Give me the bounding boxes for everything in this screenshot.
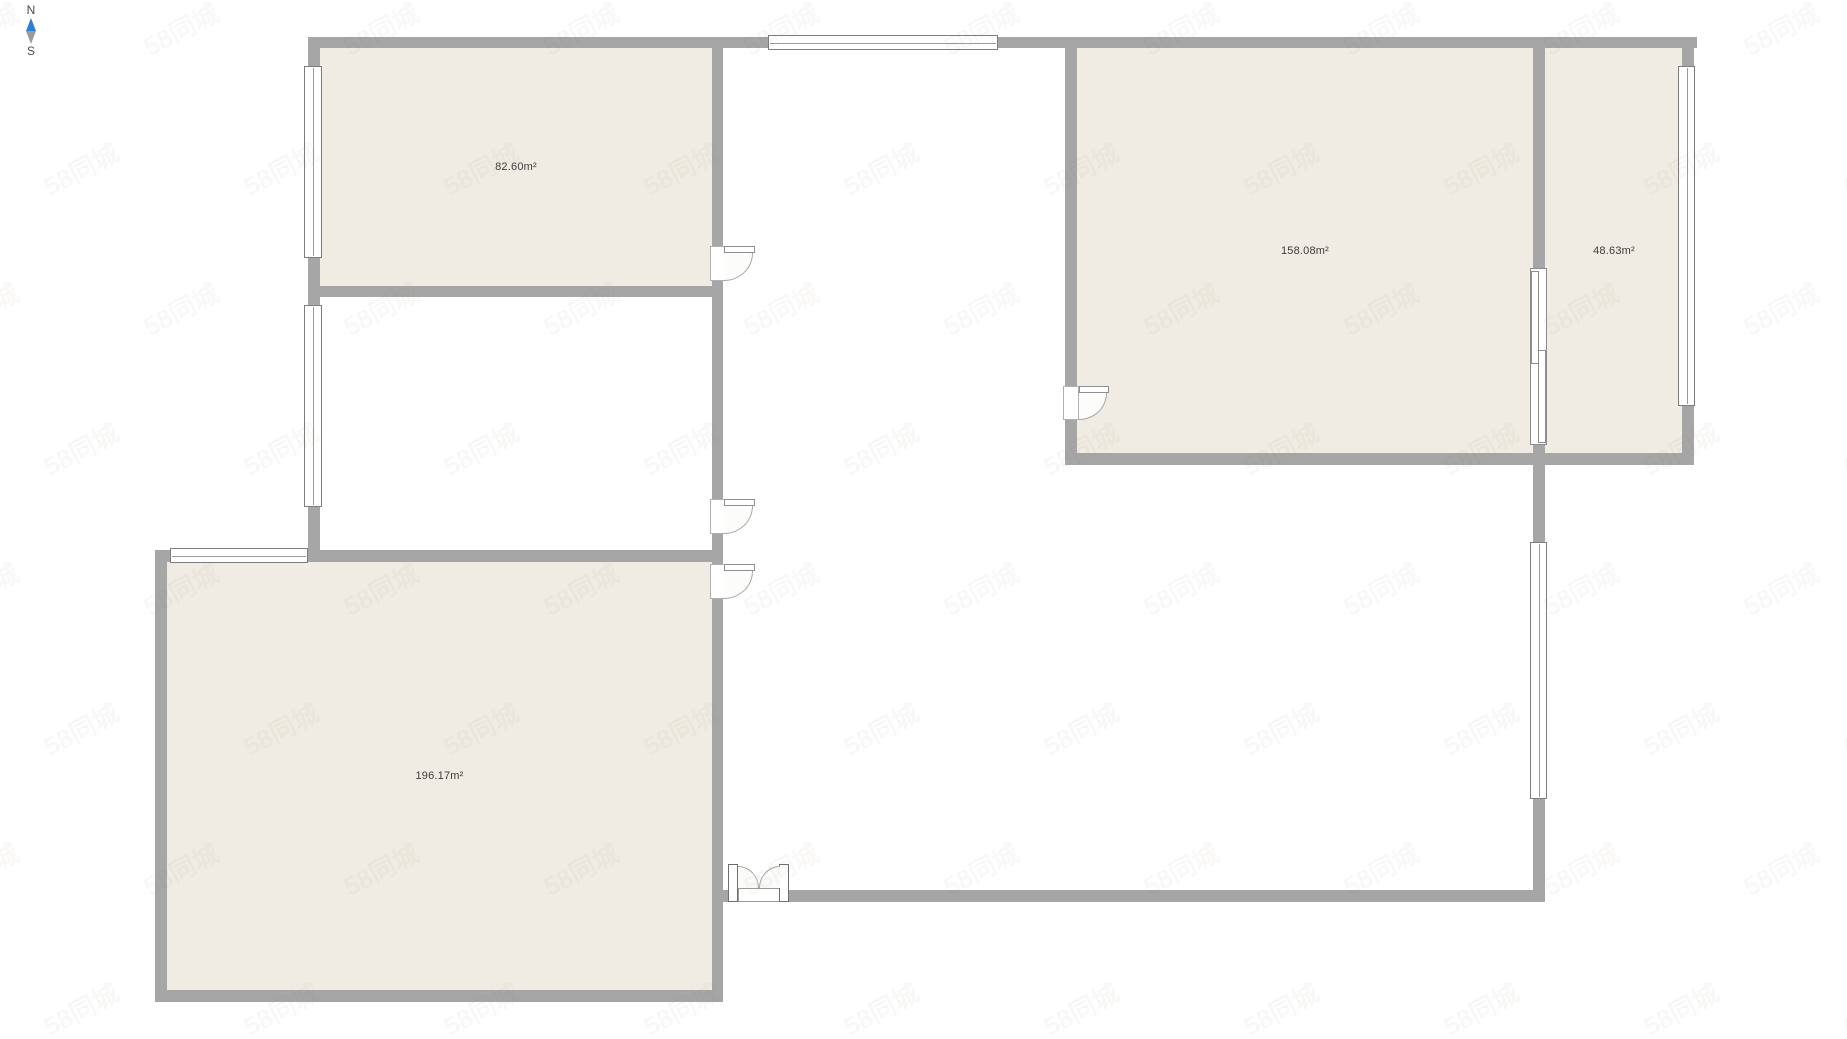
window-corridor-right <box>1530 542 1547 799</box>
window-middle-room <box>304 305 322 507</box>
room-area-label: 82.60m² <box>495 161 537 173</box>
wall-bottomleft-room-bottom <box>155 990 723 1002</box>
watermark-text: 58同城 <box>1036 693 1125 764</box>
watermark-text: 58同城 <box>0 273 25 344</box>
watermark-text: 58同城 <box>1236 973 1325 1039</box>
watermark-text: 58同城 <box>1636 973 1725 1039</box>
watermark-text: 58同城 <box>936 0 1025 64</box>
door-leaf <box>724 246 755 253</box>
wall-topleft-room-bottom <box>308 286 723 297</box>
sliding-door-panel-bottom <box>1538 350 1546 443</box>
door-swing-arc <box>724 571 753 599</box>
window-top-corridor <box>768 35 998 50</box>
watermark-text: 58同城 <box>836 693 925 764</box>
door-swing-arc <box>724 506 753 534</box>
watermark-text: 58同城 <box>836 973 925 1039</box>
room-area-label: 48.63m² <box>1593 245 1635 257</box>
watermark-text: 58同城 <box>1436 693 1525 764</box>
compass-north-arrow-icon <box>26 18 36 31</box>
watermark-text: 58同城 <box>736 0 825 64</box>
wall-bottomleft-room-left <box>155 550 167 1002</box>
watermark-text: 58同城 <box>1336 553 1425 624</box>
compass-south-arrow-icon <box>26 31 36 44</box>
room-bottom-left: 196.17m² <box>161 556 718 996</box>
watermark-text: 58同城 <box>836 133 925 204</box>
room-area-label: 158.08m² <box>1281 245 1329 257</box>
window-topleft-room <box>304 66 322 258</box>
window-glass-line <box>770 43 996 44</box>
watermark-text: 58同城 <box>736 273 825 344</box>
window-glass-line <box>172 556 306 557</box>
door-jamb <box>710 564 725 599</box>
double-door-swing-arc-right <box>759 866 780 888</box>
double-door-panel <box>738 888 780 902</box>
watermark-text: 58同城 <box>36 973 125 1039</box>
floor-plan: N S 82.60m² 196.17m² 158.08m² 48.63m² <box>0 0 1847 1039</box>
watermark-text: 58同城 <box>1836 133 1847 204</box>
door-swing-arc <box>724 253 753 281</box>
window-right-small-room <box>1678 66 1695 406</box>
window-glass-line <box>1687 68 1688 404</box>
wall-top <box>310 37 1697 48</box>
door-jamb <box>710 499 725 534</box>
watermark-text: 58同城 <box>1736 273 1825 344</box>
watermark-text: 58同城 <box>1136 553 1225 624</box>
window-glass-line <box>313 68 314 256</box>
room-right-small: 48.63m² <box>1539 42 1689 459</box>
watermark-text: 58同城 <box>1536 553 1625 624</box>
door-jamb <box>1063 386 1079 420</box>
window-glass-line <box>1539 544 1540 797</box>
window-bottomleft-room <box>170 548 308 563</box>
double-door-swing-arc-left <box>738 866 759 888</box>
watermark-text: 58同城 <box>136 0 225 64</box>
watermark-text: 58同城 <box>436 413 525 484</box>
double-door-jamb-right <box>779 864 789 902</box>
room-right-large: 158.08m² <box>1071 42 1539 459</box>
watermark-text: 58同城 <box>36 133 125 204</box>
watermark-text: 58同城 <box>36 693 125 764</box>
watermark-text: 58同城 <box>1736 0 1825 64</box>
watermark-text: 58同城 <box>0 553 25 624</box>
watermark-text: 58同城 <box>1436 973 1525 1039</box>
double-door-jamb-left <box>728 864 738 902</box>
watermark-text: 58同城 <box>36 413 125 484</box>
door-leaf <box>724 499 755 506</box>
room-top-left: 82.60m² <box>314 42 718 291</box>
watermark-text: 58同城 <box>136 273 225 344</box>
compass: N S <box>16 4 46 58</box>
watermark-text: 58同城 <box>836 413 925 484</box>
compass-south-label: S <box>27 45 35 58</box>
watermark-text: 58同城 <box>1836 693 1847 764</box>
watermark-text: 58同城 <box>1536 833 1625 904</box>
watermark-text: 58同城 <box>0 833 25 904</box>
compass-north-label: N <box>27 4 36 17</box>
watermark-text: 58同城 <box>1036 973 1125 1039</box>
wall-right-rooms-bottom <box>1065 453 1694 465</box>
watermark-text: 58同城 <box>936 553 1025 624</box>
window-glass-line <box>313 307 314 505</box>
watermark-text: 58同城 <box>936 273 1025 344</box>
watermark-text: 58同城 <box>1236 693 1325 764</box>
door-leaf <box>724 564 755 571</box>
door-leaf <box>1079 386 1109 393</box>
watermark-text: 58同城 <box>1836 413 1847 484</box>
door-jamb <box>710 246 725 281</box>
room-area-label: 196.17m² <box>415 770 463 782</box>
watermark-text: 58同城 <box>1736 553 1825 624</box>
watermark-text: 58同城 <box>1736 833 1825 904</box>
wall-corridor-bottom <box>712 890 1545 902</box>
watermark-text: 58同城 <box>1636 693 1725 764</box>
watermark-text: 58同城 <box>1836 973 1847 1039</box>
